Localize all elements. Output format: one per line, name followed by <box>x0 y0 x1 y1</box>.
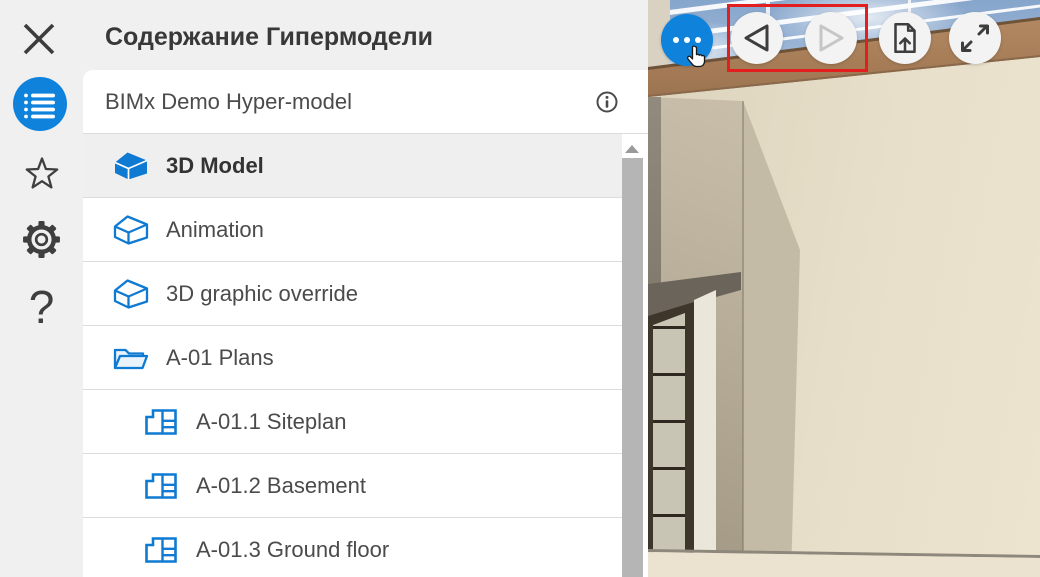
tab-favorites[interactable] <box>0 155 83 198</box>
tree-item-3d-model[interactable]: 3D Model <box>83 134 622 198</box>
model-tree: 3D Model Animation 3D graphic override A… <box>83 134 622 577</box>
scrollbar-thumb[interactable] <box>622 158 643 577</box>
house-outline-icon <box>112 278 150 310</box>
panel-title: Содержание Гипермодели <box>105 23 433 52</box>
folder-icon <box>112 343 150 373</box>
close-panel-button[interactable] <box>21 21 57 57</box>
tab-settings[interactable] <box>0 219 83 265</box>
expand-arrows-icon <box>953 16 997 60</box>
hyper-model-header-row[interactable]: BIMx Demo Hyper-model <box>83 70 648 134</box>
tab-help[interactable]: ? <box>0 283 83 331</box>
more-button[interactable] <box>661 14 713 66</box>
house-filled-icon <box>112 150 150 182</box>
star-icon <box>23 155 61 193</box>
tree-item-label: A-01.1 Siteplan <box>196 409 346 435</box>
scrollbar-up-arrow-icon[interactable] <box>625 145 639 153</box>
tree-item-label: Animation <box>166 217 264 243</box>
tree-item-3d-graphic-override[interactable]: 3D graphic override <box>83 262 622 326</box>
house-outline-icon <box>112 214 150 246</box>
scrollbar[interactable] <box>622 140 643 577</box>
question-mark-icon: ? <box>29 281 55 333</box>
3d-viewport[interactable] <box>648 0 1040 577</box>
model-tree-card: BIMx Demo Hyper-model 3D Model Animation… <box>83 70 648 577</box>
close-icon <box>21 21 57 57</box>
tree-item-animation[interactable]: Animation <box>83 198 622 262</box>
layout-icon <box>142 536 180 564</box>
tree-item-a-01-2-basement[interactable]: A-01.2 Basement <box>83 454 622 518</box>
red-highlight-annotation <box>727 4 868 72</box>
wall-corner-edge <box>742 101 744 577</box>
tree-item-label: A-01.3 Ground floor <box>196 537 389 563</box>
list-icon <box>13 77 67 131</box>
tree-item-a-01-plans[interactable]: A-01 Plans <box>83 326 622 390</box>
hyper-model-name: BIMx Demo Hyper-model <box>83 89 352 115</box>
layout-icon <box>142 472 180 500</box>
tree-item-label: A-01 Plans <box>166 345 274 371</box>
document-upload-icon <box>886 19 924 57</box>
tree-item-a-01-1-siteplan[interactable]: A-01.1 Siteplan <box>83 390 622 454</box>
export-button[interactable] <box>879 12 931 64</box>
tab-contents[interactable] <box>13 77 67 131</box>
ellipsis-icon <box>661 14 713 66</box>
layout-icon <box>142 408 180 436</box>
fullscreen-button[interactable] <box>949 12 1001 64</box>
contents-panel: Содержание Гипермодели BIMx Demo Hyper-m… <box>0 0 648 577</box>
tree-item-label: 3D Model <box>166 153 264 179</box>
info-icon <box>596 91 618 113</box>
tree-item-label: 3D graphic override <box>166 281 358 307</box>
bimx-app-window: Содержание Гипермодели BIMx Demo Hyper-m… <box>0 0 1040 577</box>
tree-item-label: A-01.2 Basement <box>196 473 366 499</box>
gear-icon <box>21 219 62 260</box>
info-button[interactable] <box>596 91 618 113</box>
tree-item-a-01-3-ground-floor[interactable]: A-01.3 Ground floor <box>83 518 622 577</box>
